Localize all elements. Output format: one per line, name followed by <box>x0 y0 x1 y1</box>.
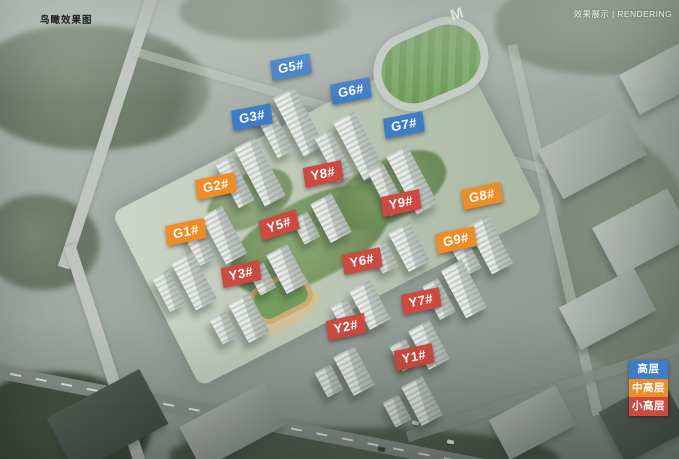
legend-item-1: 中高层 <box>629 379 668 398</box>
building-label-y2: Y2# <box>326 313 367 341</box>
building-label-y5: Y5# <box>258 209 300 240</box>
rendering-canvas: M G5#G6#G3#G7#G2#Y8#G8#Y9#Y5#G1#G9#Y6#Y3… <box>0 0 679 459</box>
building-label-y6: Y6# <box>342 247 383 275</box>
page-title: 鸟瞰效果图 <box>40 12 93 26</box>
building-label-y3: Y3# <box>221 260 262 288</box>
building-label-g2: G2# <box>195 172 237 200</box>
building-label-g1: G1# <box>165 218 207 246</box>
building-label-g3: G3# <box>231 103 273 131</box>
building-label-g5: G5# <box>270 53 312 81</box>
building-label-g8: G8# <box>461 182 503 210</box>
building-label-y7: Y7# <box>401 287 442 315</box>
building-label-y1: Y1# <box>394 343 435 371</box>
building-label-g9: G9# <box>435 226 477 254</box>
building-label-y8: Y8# <box>303 160 344 188</box>
labels-layer: G5#G6#G3#G7#G2#Y8#G8#Y9#Y5#G1#G9#Y6#Y3#Y… <box>0 0 679 459</box>
building-label-g6: G6# <box>330 77 372 105</box>
legend-item-0: 高层 <box>629 360 668 379</box>
legend: 高层中高层小高层 <box>629 360 668 416</box>
watermark-label: 效果展示 | RENDERING <box>574 8 672 20</box>
building-label-y9: Y9# <box>381 189 422 217</box>
building-label-g7: G7# <box>383 111 425 139</box>
legend-item-2: 小高层 <box>629 397 668 416</box>
